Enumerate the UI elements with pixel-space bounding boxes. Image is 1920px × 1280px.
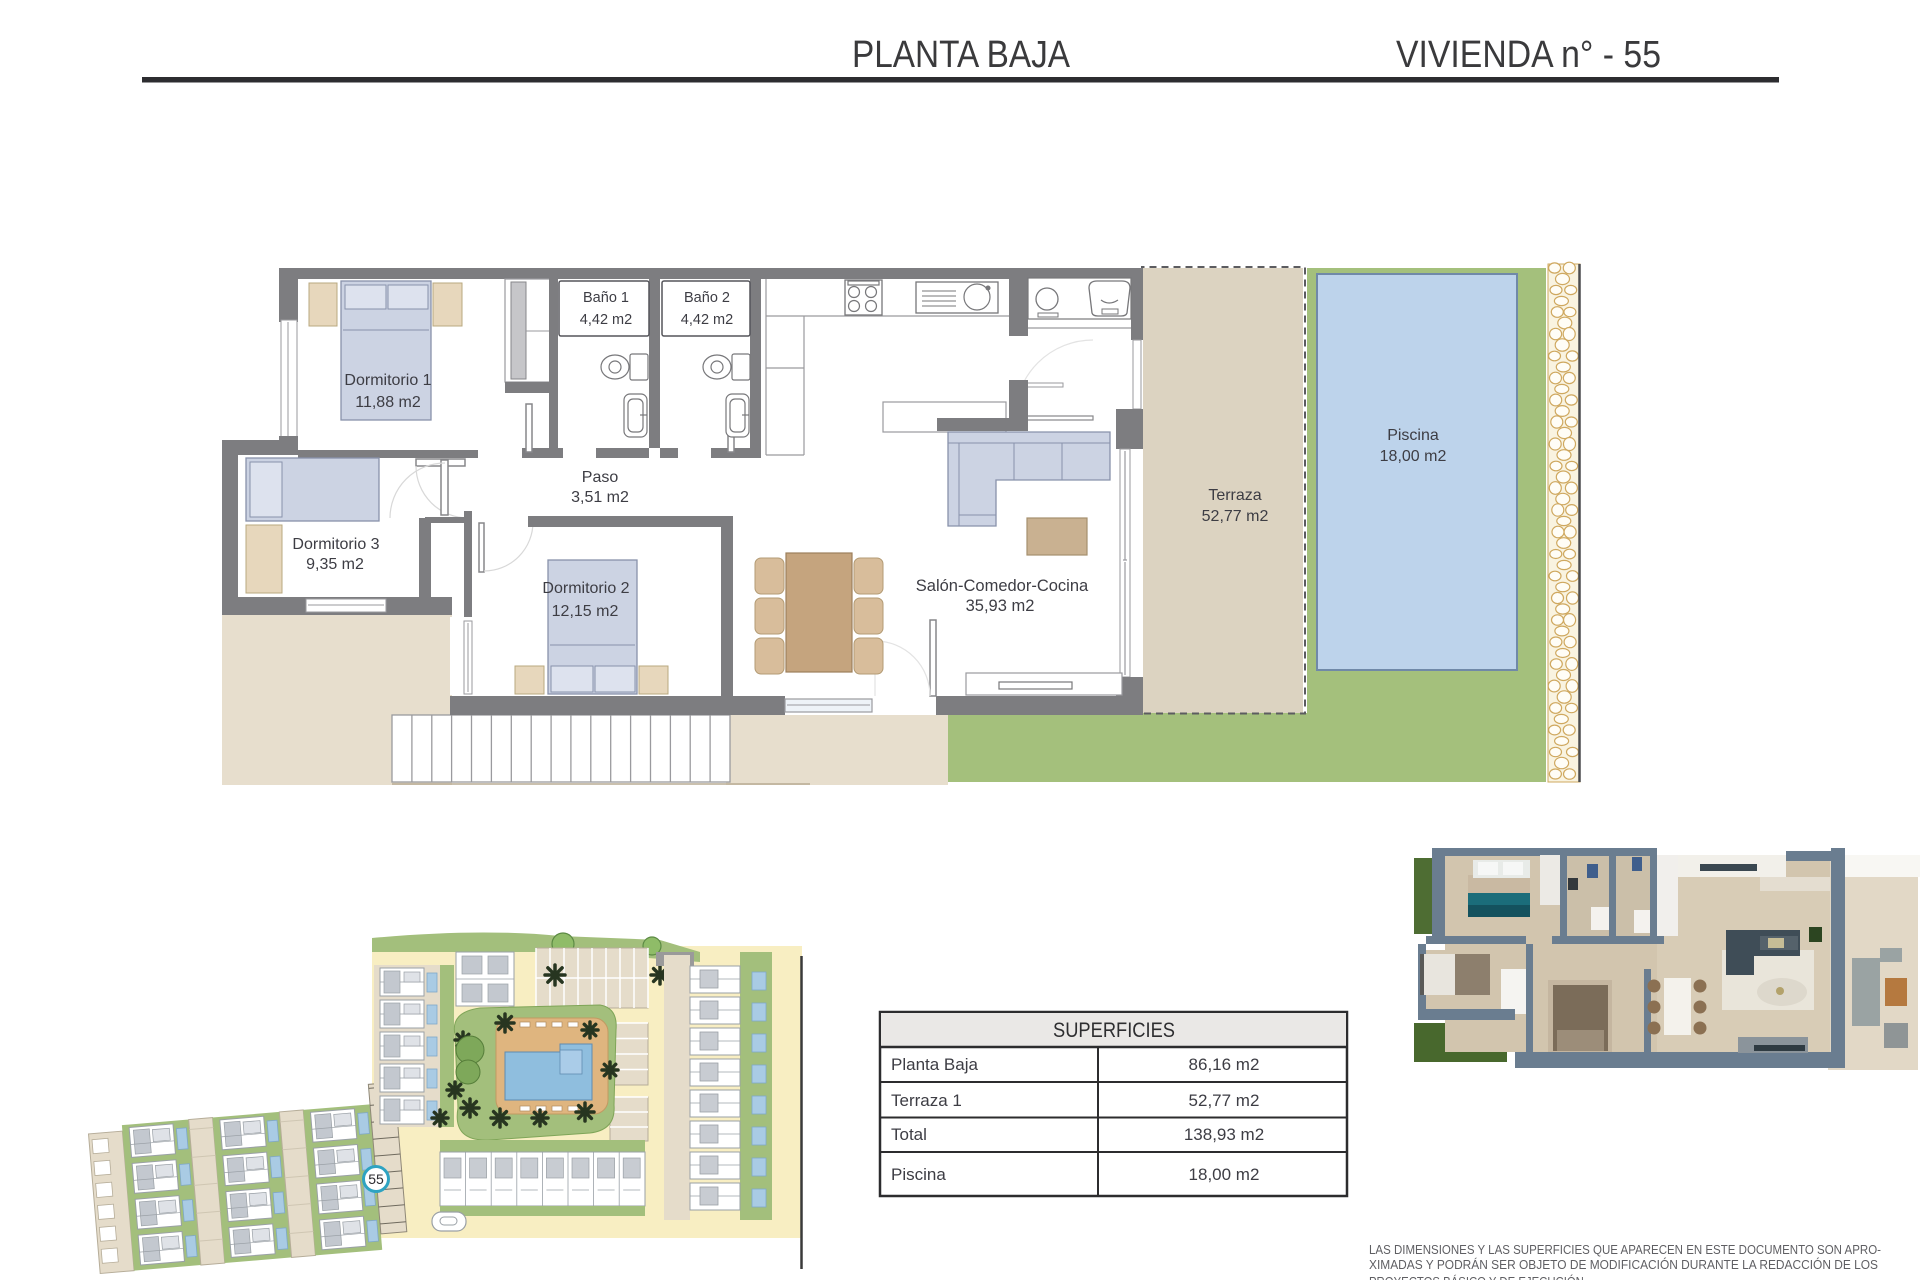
svg-text:PLANTA BAJA: PLANTA BAJA (852, 34, 1071, 76)
svg-text:Dormitorio 3: Dormitorio 3 (292, 536, 379, 553)
svg-text:4,42 m2: 4,42 m2 (580, 312, 632, 328)
svg-text:52,77 m2: 52,77 m2 (1202, 508, 1269, 525)
svg-text:18,00 m2: 18,00 m2 (1189, 1165, 1260, 1184)
svg-text:Piscina: Piscina (1387, 427, 1439, 444)
svg-text:Paso: Paso (582, 469, 619, 486)
svg-text:Terraza: Terraza (1208, 487, 1261, 504)
svg-text:SUPERFICIES: SUPERFICIES (1053, 1019, 1175, 1042)
svg-text:Baño 1: Baño 1 (583, 290, 629, 306)
svg-text:XIMADAS Y PODRÁN SER OBJETO DE: XIMADAS Y PODRÁN SER OBJETO DE MODIFICAC… (1369, 1257, 1878, 1272)
svg-text:18,00 m2: 18,00 m2 (1380, 448, 1447, 465)
svg-text:9,35 m2: 9,35 m2 (306, 556, 364, 573)
svg-text:86,16 m2: 86,16 m2 (1189, 1055, 1260, 1074)
svg-text:4,42 m2: 4,42 m2 (681, 312, 733, 328)
svg-text:Total: Total (891, 1125, 927, 1144)
svg-text:Salón-Comedor-Cocina: Salón-Comedor-Cocina (916, 577, 1089, 595)
svg-text:Baño 2: Baño 2 (684, 290, 730, 306)
svg-text:Dormitorio 2: Dormitorio 2 (542, 580, 629, 597)
svg-text:3,51 m2: 3,51 m2 (571, 489, 629, 506)
svg-text:Piscina: Piscina (891, 1165, 946, 1184)
svg-text:Planta Baja: Planta Baja (891, 1055, 978, 1074)
svg-text:52,77 m2: 52,77 m2 (1189, 1091, 1260, 1110)
svg-text:Terraza 1: Terraza 1 (891, 1091, 962, 1110)
svg-text:11,88 m2: 11,88 m2 (355, 394, 421, 411)
svg-text:12,15 m2: 12,15 m2 (552, 603, 619, 620)
svg-text:Dormitorio 1: Dormitorio 1 (344, 372, 431, 389)
svg-text:LAS DIMENSIONES Y LAS SUPERFIC: LAS DIMENSIONES Y LAS SUPERFICIES QUE AP… (1369, 1242, 1881, 1257)
svg-text:55: 55 (368, 1171, 384, 1187)
svg-text:35,93 m2: 35,93 m2 (966, 597, 1035, 615)
svg-text:138,93 m2: 138,93 m2 (1184, 1125, 1264, 1144)
svg-text:VIVIENDA n° - 55: VIVIENDA n° - 55 (1396, 34, 1661, 76)
svg-text:PROYECTOS BÁSICO Y DE EJECUCIÓ: PROYECTOS BÁSICO Y DE EJECUCIÓN. (1369, 1274, 1587, 1280)
